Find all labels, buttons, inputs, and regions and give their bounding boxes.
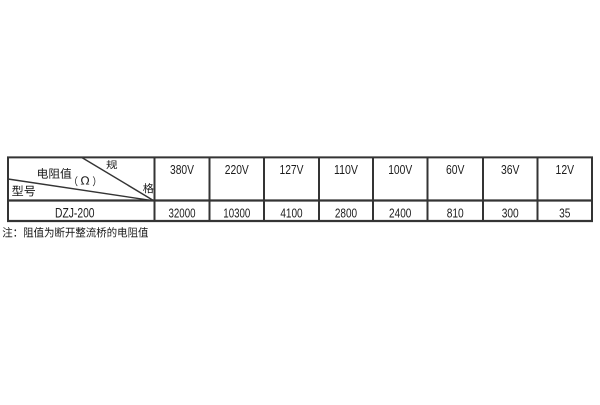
svg-text:810: 810: [447, 207, 464, 221]
svg-text:4100: 4100: [280, 207, 302, 221]
svg-text:220V: 220V: [225, 162, 249, 177]
svg-text:60V: 60V: [446, 162, 465, 177]
svg-text:100V: 100V: [388, 162, 412, 177]
svg-text:2400: 2400: [389, 207, 411, 221]
svg-text:110V: 110V: [334, 162, 358, 177]
svg-text:36V: 36V: [501, 162, 520, 177]
svg-text:10300: 10300: [223, 207, 250, 221]
svg-text:380V: 380V: [170, 162, 194, 177]
svg-text:300: 300: [502, 207, 519, 221]
svg-text:12V: 12V: [556, 162, 575, 177]
svg-text:DZJ-200: DZJ-200: [55, 205, 95, 220]
svg-text:127V: 127V: [280, 162, 304, 177]
svg-text:32000: 32000: [169, 207, 196, 221]
svg-text:35: 35: [559, 207, 570, 221]
svg-text:2800: 2800: [335, 207, 357, 221]
